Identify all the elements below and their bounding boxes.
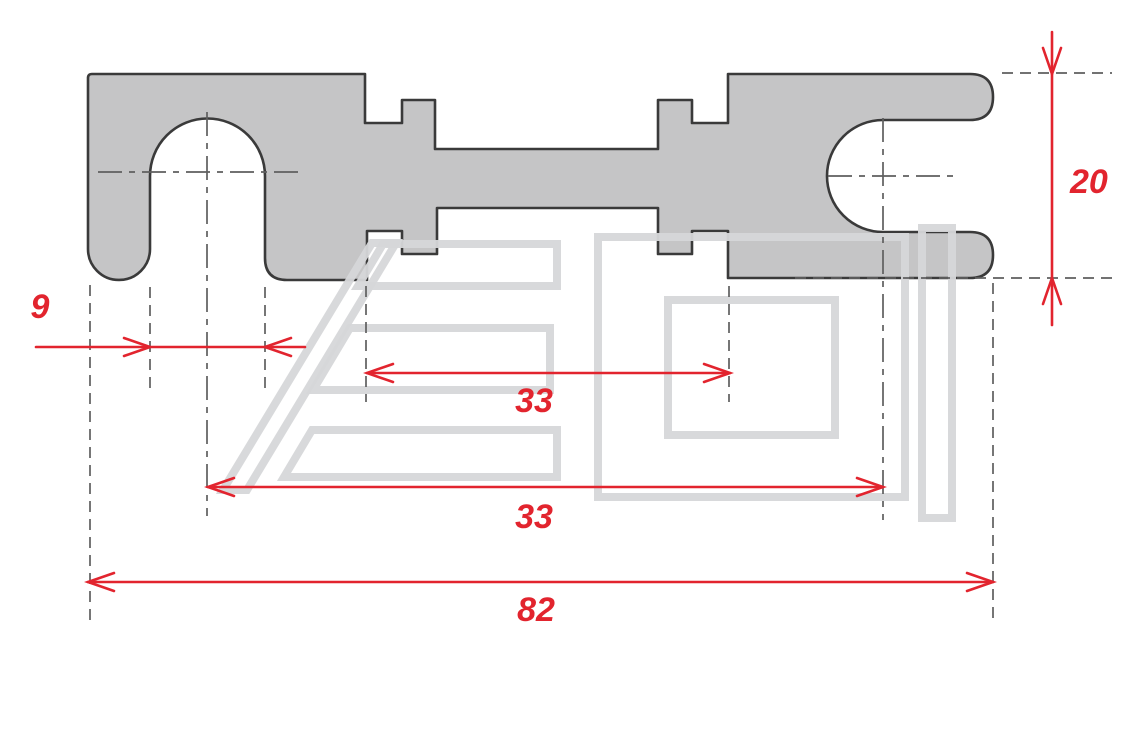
- dimension-slot-width: 9: [31, 288, 305, 356]
- watermark-a-inner: [668, 300, 835, 435]
- drawing-canvas: 9 33 33 82 20: [0, 0, 1146, 736]
- watermark-e-arm-mid: [313, 328, 550, 390]
- dimension-overall-length: 82: [88, 573, 993, 629]
- dim-label-center-distance: 33: [515, 498, 553, 536]
- fuse-strip-shape: [88, 74, 993, 280]
- dim-label-overall-length: 82: [517, 591, 555, 629]
- dimension-end-width: 20: [1043, 32, 1108, 325]
- watermark-e-arm-bottom: [284, 430, 557, 477]
- technical-drawing: 9 33 33 82 20: [0, 0, 1146, 736]
- dimension-center-distance: 33: [208, 478, 883, 536]
- dim-label-slot-width: 9: [31, 288, 50, 326]
- dim-label-body-gap: 33: [515, 382, 553, 420]
- dim-label-end-width: 20: [1069, 163, 1108, 201]
